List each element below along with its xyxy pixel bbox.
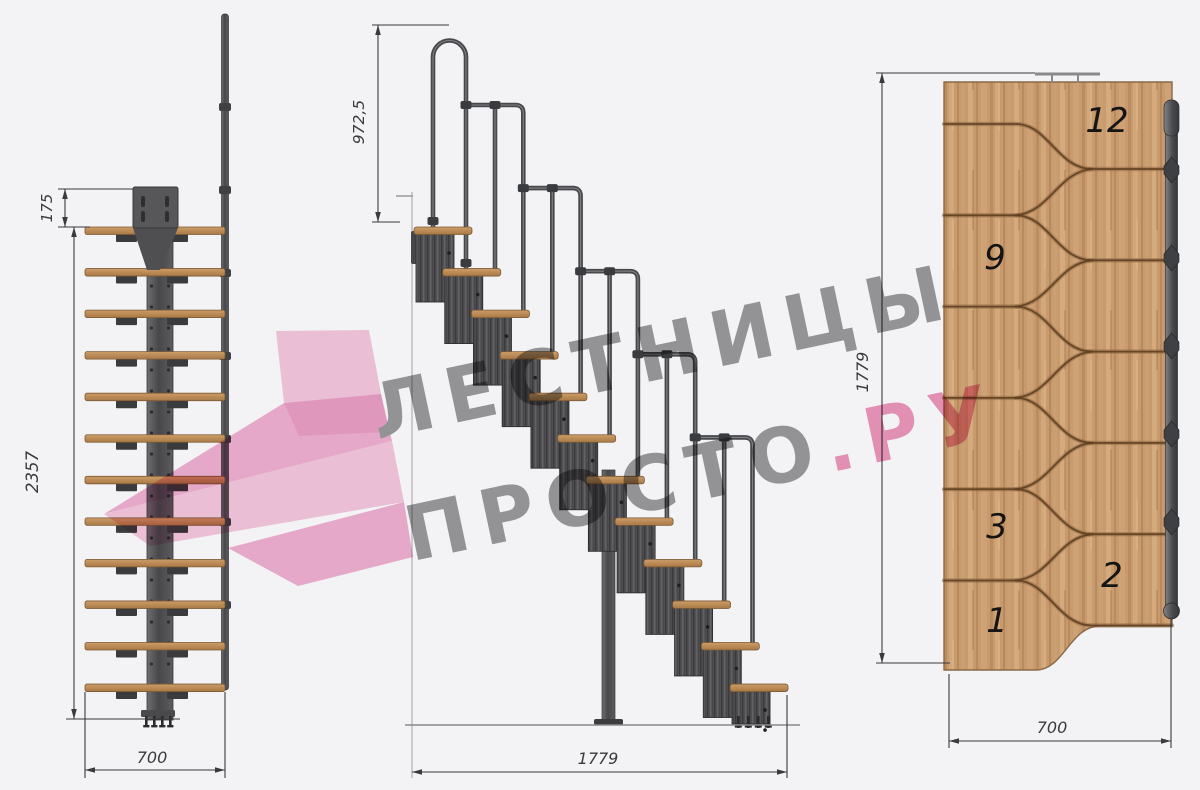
tread bbox=[85, 476, 225, 484]
tread bbox=[586, 476, 644, 484]
tread bbox=[85, 393, 225, 401]
dimension-arrow bbox=[777, 769, 787, 775]
bolt bbox=[533, 376, 537, 380]
rail-joint-collar bbox=[719, 433, 730, 441]
support-post-base bbox=[594, 719, 623, 725]
anchor-bolt bbox=[159, 725, 165, 727]
bolt bbox=[167, 620, 170, 623]
tread bbox=[443, 269, 501, 277]
wall-mount-plate bbox=[133, 187, 178, 228]
dimension-arrow bbox=[412, 769, 422, 775]
anchor-bolt bbox=[143, 725, 149, 727]
tread bbox=[529, 393, 587, 401]
plan-handrail bbox=[1164, 100, 1180, 619]
dimension-arrow bbox=[62, 217, 68, 227]
bolt bbox=[150, 431, 153, 434]
bolt bbox=[591, 459, 595, 463]
bolt bbox=[167, 536, 170, 539]
bolt bbox=[505, 334, 509, 338]
bolt bbox=[167, 368, 170, 371]
rail-joint-collar bbox=[461, 101, 472, 109]
dim-label-1779-plan: 1779 bbox=[853, 352, 872, 393]
bolt bbox=[150, 368, 153, 371]
tread bbox=[701, 643, 759, 651]
tread bbox=[85, 435, 225, 443]
dimension-arrow bbox=[375, 212, 381, 222]
side-view bbox=[396, 41, 800, 779]
rail-joint-collar bbox=[428, 217, 439, 225]
bolt bbox=[167, 305, 170, 308]
staircase-technical-drawing: 129321 1752357700972,517791779700 bbox=[0, 0, 1200, 790]
bolt bbox=[735, 667, 739, 671]
plate-slot bbox=[165, 196, 169, 207]
anchor-bolt bbox=[167, 725, 173, 727]
rail-joint-collar bbox=[219, 186, 231, 194]
dimension-arrow bbox=[375, 25, 381, 35]
bolt bbox=[763, 728, 767, 732]
tread bbox=[414, 227, 472, 235]
bolt bbox=[150, 536, 153, 539]
dimension-arrow bbox=[215, 767, 225, 773]
bolt bbox=[150, 347, 153, 350]
dimension-arrow bbox=[879, 653, 885, 663]
step-number: 2 bbox=[1101, 556, 1123, 596]
tread bbox=[500, 352, 558, 360]
bolt bbox=[706, 625, 710, 629]
dim-label-1779-side: 1779 bbox=[578, 749, 619, 768]
dimension-arrow bbox=[1161, 738, 1171, 744]
rail-joint-collar bbox=[219, 103, 231, 111]
rail-joint-collar bbox=[547, 184, 558, 192]
tread bbox=[644, 559, 702, 567]
front-view bbox=[85, 14, 231, 727]
bolt bbox=[447, 251, 451, 255]
bolt bbox=[150, 620, 153, 623]
tread bbox=[85, 684, 225, 692]
bolt bbox=[167, 410, 170, 413]
dimension-arrow bbox=[85, 767, 95, 773]
bolt bbox=[150, 578, 153, 581]
bolt bbox=[167, 326, 170, 329]
tread bbox=[85, 518, 225, 526]
bolt bbox=[763, 708, 767, 712]
plan-view: 129321 bbox=[944, 74, 1180, 670]
handrail-end-ball bbox=[1164, 603, 1180, 619]
rail-joint-collar bbox=[661, 350, 672, 358]
tread bbox=[730, 684, 788, 692]
dim-label-700-front: 700 bbox=[137, 748, 168, 767]
bolt bbox=[167, 284, 170, 287]
drawing-canvas: 129321 1752357700972,517791779700 ЛЕСТНИ… bbox=[0, 0, 1200, 790]
rail-joint-collar bbox=[575, 267, 586, 275]
bolt bbox=[150, 494, 153, 497]
bolt bbox=[150, 326, 153, 329]
handrail-cap bbox=[1164, 100, 1179, 136]
step-number: 12 bbox=[1085, 101, 1128, 141]
tread bbox=[673, 601, 731, 609]
bolt bbox=[150, 389, 153, 392]
rail-joint-collar bbox=[518, 184, 529, 192]
tread bbox=[558, 435, 616, 443]
bolt bbox=[150, 284, 153, 287]
bolt bbox=[476, 293, 480, 297]
bolt bbox=[648, 542, 652, 546]
bolt bbox=[167, 494, 170, 497]
rail-joint-collar bbox=[490, 101, 501, 109]
dimension-arrow bbox=[949, 738, 959, 744]
bolt bbox=[167, 389, 170, 392]
rail-joint-collar bbox=[461, 259, 472, 267]
rail-joint-collar bbox=[690, 433, 701, 441]
plate-slot bbox=[141, 196, 145, 207]
bolt bbox=[150, 410, 153, 413]
dimension-arrow bbox=[71, 709, 77, 719]
dim-label-2357: 2357 bbox=[23, 451, 42, 493]
bolt bbox=[677, 584, 681, 588]
bolt bbox=[167, 347, 170, 350]
column-foot bbox=[141, 710, 175, 717]
dimension-arrow bbox=[62, 189, 68, 199]
tread bbox=[85, 310, 225, 318]
tread bbox=[85, 559, 225, 567]
rail-joint-collar bbox=[632, 350, 643, 358]
step-number: 1 bbox=[986, 601, 1008, 641]
dim-label-700-plan: 700 bbox=[1037, 718, 1068, 737]
tread bbox=[471, 310, 529, 318]
bolt bbox=[150, 662, 153, 665]
plate-slot bbox=[165, 211, 169, 222]
plate-slot bbox=[141, 211, 145, 222]
step-number: 9 bbox=[984, 238, 1006, 278]
dim-label-175: 175 bbox=[38, 194, 56, 223]
dim-label-972-5: 972,5 bbox=[350, 100, 368, 144]
bolt bbox=[167, 662, 170, 665]
tread bbox=[85, 352, 225, 360]
bolt bbox=[167, 452, 170, 455]
tread bbox=[85, 643, 225, 651]
bolt bbox=[620, 501, 624, 505]
bolt bbox=[150, 452, 153, 455]
rail-joint-collar bbox=[604, 267, 615, 275]
dimension-arrow bbox=[879, 73, 885, 83]
dimension-arrow bbox=[71, 227, 77, 237]
bolt bbox=[562, 417, 566, 421]
tread bbox=[85, 601, 225, 609]
anchor-bolt bbox=[151, 725, 157, 727]
bolt bbox=[167, 578, 170, 581]
bolt bbox=[167, 431, 170, 434]
bolt bbox=[150, 305, 153, 308]
tread bbox=[615, 518, 673, 526]
step-number: 3 bbox=[986, 507, 1008, 547]
